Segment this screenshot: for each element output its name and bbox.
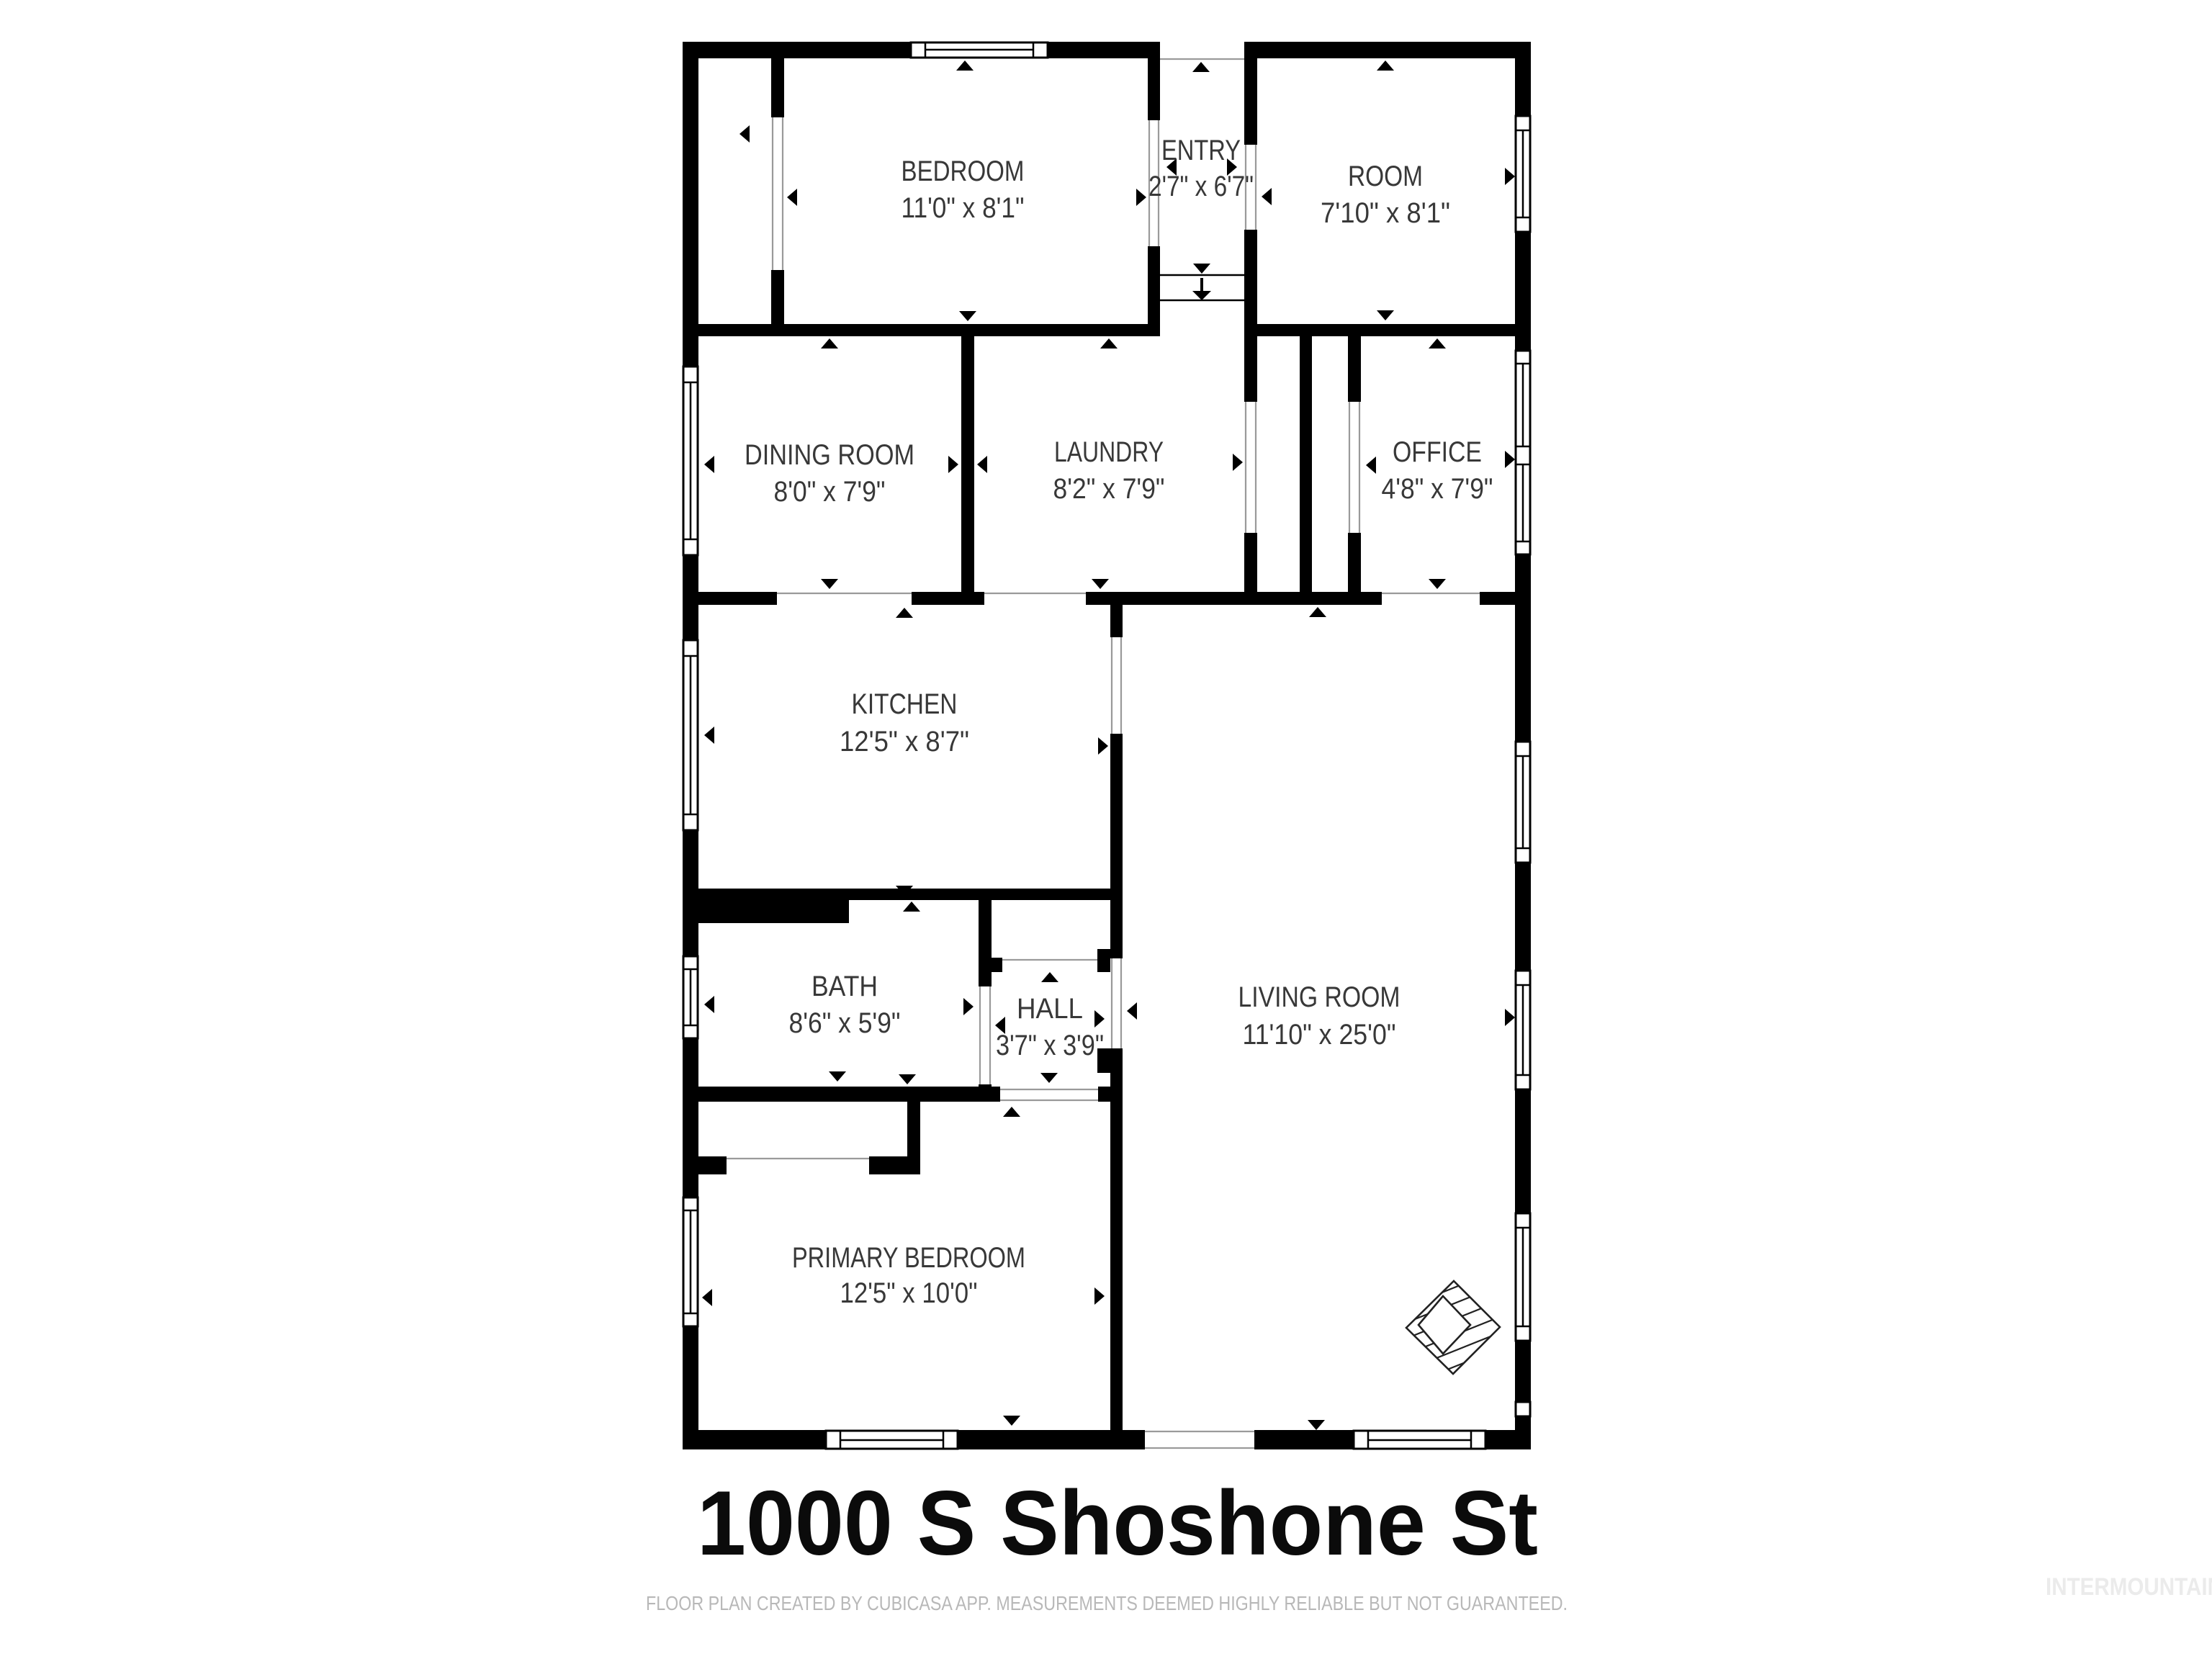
svg-text:8'0" x 7'9": 8'0" x 7'9" [774,476,886,508]
svg-text:FLOOR PLAN CREATED BY CUBICASA: FLOOR PLAN CREATED BY CUBICASA APP. MEAS… [646,1592,1568,1614]
svg-text:LIVING ROOM: LIVING ROOM [1238,981,1401,1013]
svg-text:DINING ROOM: DINING ROOM [745,439,914,471]
svg-text:12'5" x 10'0": 12'5" x 10'0" [840,1277,978,1309]
svg-text:BATH: BATH [811,971,878,1002]
svg-text:11'10" x 25'0": 11'10" x 25'0" [1243,1019,1396,1051]
svg-text:OFFICE: OFFICE [1393,436,1482,468]
svg-text:3'7" x 3'9": 3'7" x 3'9" [996,1030,1104,1061]
svg-text:8'6" x 5'9": 8'6" x 5'9" [789,1007,901,1039]
svg-text:12'5" x 8'7": 12'5" x 8'7" [840,726,969,757]
svg-text:1000 S Shoshone St: 1000 S Shoshone St [697,1472,1538,1574]
svg-text:4'8" x 7'9": 4'8" x 7'9" [1382,473,1493,505]
svg-text:PRIMARY BEDROOM: PRIMARY BEDROOM [792,1242,1025,1274]
svg-text:8'2" x 7'9": 8'2" x 7'9" [1053,473,1165,505]
svg-text:ENTRY: ENTRY [1161,135,1241,166]
svg-text:2'7" x 6'7": 2'7" x 6'7" [1148,171,1254,202]
svg-text:BEDROOM: BEDROOM [902,156,1025,187]
svg-text:HALL: HALL [1017,993,1083,1025]
svg-text:ROOM: ROOM [1348,161,1423,192]
svg-text:11'0" x 8'1": 11'0" x 8'1" [902,192,1025,224]
svg-text:INTERMOUNTAIN: INTERMOUNTAIN [2046,1573,2212,1601]
svg-text:7'10" x 8'1": 7'10" x 8'1" [1321,197,1450,229]
svg-text:LAUNDRY: LAUNDRY [1054,436,1164,468]
svg-text:KITCHEN: KITCHEN [852,688,958,720]
